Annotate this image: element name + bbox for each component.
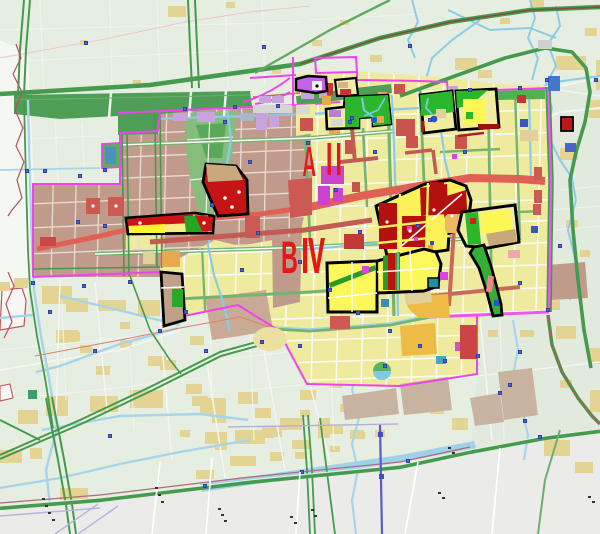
svg-text:B: B	[281, 233, 298, 283]
